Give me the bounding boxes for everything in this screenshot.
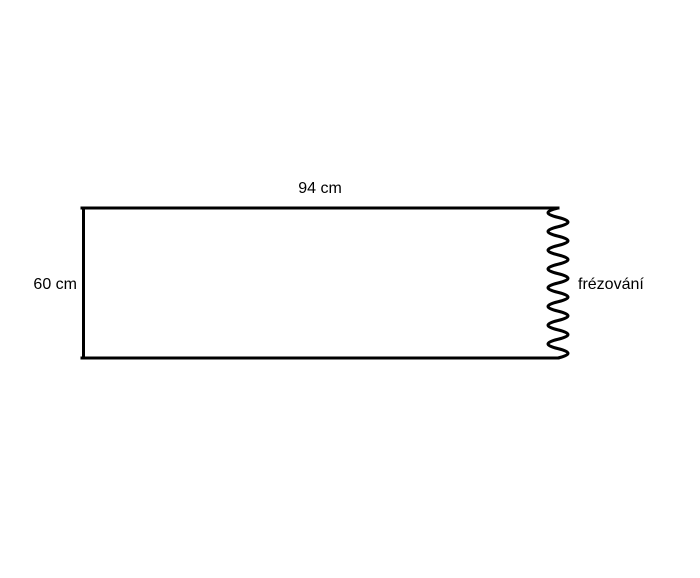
milled-edge-wave <box>548 208 568 358</box>
milled-edge-label: frézování <box>578 276 644 294</box>
diagram-canvas: 94 cm 60 cm frézování <box>0 0 700 578</box>
height-dimension-label: 60 cm <box>0 276 77 294</box>
width-dimension-label: 94 cm <box>82 180 558 198</box>
